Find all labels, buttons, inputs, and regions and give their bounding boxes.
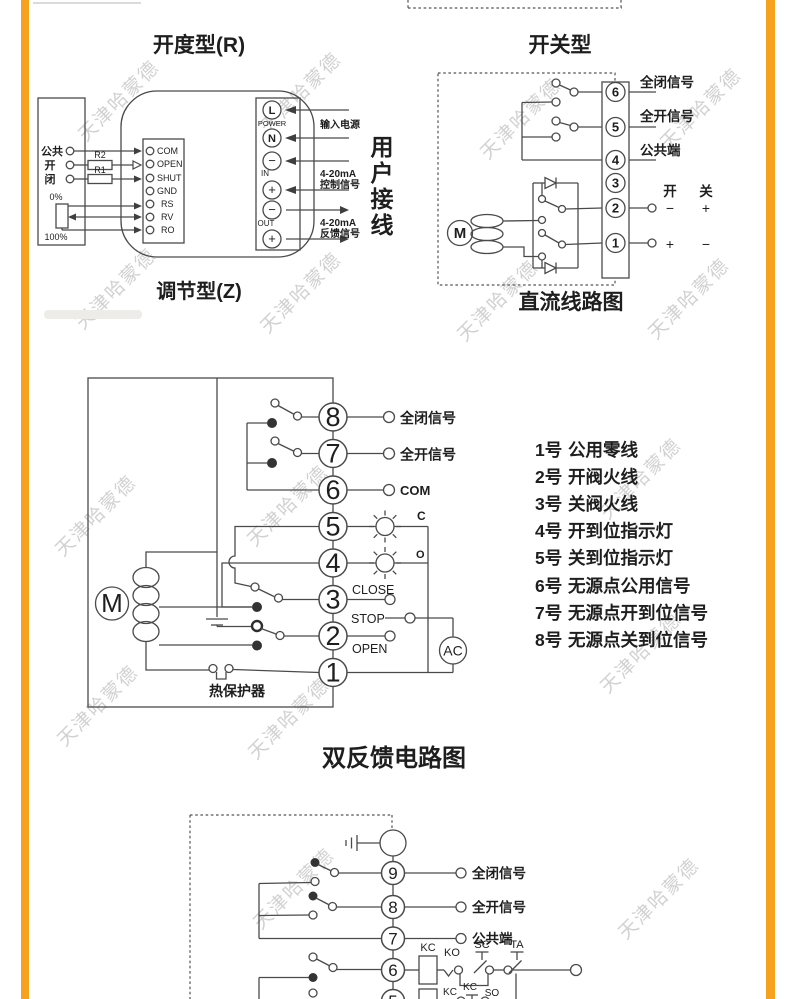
left-wiring-arrows: R2 R1 xyxy=(62,148,142,234)
d3-mid-switches xyxy=(222,527,319,651)
label-power: POWER xyxy=(258,119,287,128)
legend-6-num: 6号 xyxy=(535,576,562,596)
legend-2-num: 2号 xyxy=(535,467,562,487)
label-fb-ma: 4-20mA xyxy=(320,218,356,229)
legend-4-text: 开到位指示灯 xyxy=(568,521,673,541)
term-in-plus: + xyxy=(268,182,276,197)
d4-term-9: 9 xyxy=(388,864,397,883)
d3-term-1: 1 xyxy=(325,658,340,688)
controller-module: COM OPEN SHUT GND RS RV RO xyxy=(121,91,314,257)
dc-terminal-strip: 6 5 4 3 2 1 xyxy=(602,82,629,278)
ac-circuit-diagram: 全闭信号 全开信号 公共端 KC KO SC TA xyxy=(190,815,582,999)
d3-term-3: 3 xyxy=(325,585,340,615)
module-term-gnd: GND xyxy=(157,186,178,196)
label-ctrl-signal: 控制信号 xyxy=(320,178,360,191)
d2-label-open-ch: 开 xyxy=(663,184,677,199)
d3-label-opened: 全开信号 xyxy=(399,447,456,463)
d3-thermal-label: 热保护器 xyxy=(209,683,266,699)
d3-label-open: OPEN xyxy=(352,642,387,656)
legend-3-text: 关阀火线 xyxy=(568,494,638,514)
d2-title: 开关型 xyxy=(529,33,592,57)
relay-coil-icon xyxy=(419,956,437,984)
d3-term-8: 8 xyxy=(325,402,340,432)
diode-icon xyxy=(545,263,556,274)
d2-term-1: 1 xyxy=(612,236,619,251)
d4-terminals: 9 8 7 6 5 xyxy=(382,862,405,999)
d3-ac-label: AC xyxy=(443,643,462,659)
capacitor-icon xyxy=(206,619,252,627)
label-fb-signal: 反馈信号 xyxy=(320,227,360,240)
legend-8-num: 8号 xyxy=(535,630,562,650)
d2-pol-minus2: − xyxy=(666,200,674,216)
wiring-diagrams-canvas: 开度型(R) 调节型(Z) 公共 开 闭 0% 100% R2 R1 xyxy=(0,0,790,999)
d3-motor-label: M xyxy=(101,588,123,618)
ground-icon xyxy=(346,835,380,851)
label-close: 闭 xyxy=(45,172,56,186)
d2-label-common: 公共端 xyxy=(640,142,681,158)
top-cropped-remnant xyxy=(33,0,622,8)
d4-kc-label: KC xyxy=(420,942,435,954)
module-term-rv: RV xyxy=(161,212,173,222)
label-open: 开 xyxy=(45,159,56,172)
legend-4-num: 4号 xyxy=(535,521,562,541)
d3-caption: 双反馈电路图 xyxy=(322,744,466,772)
d4-switches xyxy=(259,858,382,999)
legend-6-text: 无源点公用信号 xyxy=(568,576,691,596)
label-pot-100: 100% xyxy=(44,232,67,242)
d3-legend: 1号 公用零线 2号 开阀火线 3号 关阀火线 4号 开到位指示灯 5号 关到位… xyxy=(535,440,708,650)
module-term-shut: SHUT xyxy=(157,173,182,183)
d4-kc2-label: KC xyxy=(443,987,457,998)
d2-label-closed: 全闭信号 xyxy=(639,74,694,90)
term-out-plus: + xyxy=(268,231,276,246)
motor-drive-loop xyxy=(503,178,602,274)
term-N: N xyxy=(268,133,276,145)
module-term-ro: RO xyxy=(161,225,175,235)
resistor-icon-r1 xyxy=(88,175,112,184)
d4-sc-label: SC xyxy=(474,939,489,951)
page-accent-bar-right xyxy=(766,0,775,999)
label-r2: R2 xyxy=(94,150,106,160)
legend-1-num: 1号 xyxy=(535,440,562,460)
user-char-1: 用 xyxy=(371,134,394,160)
d3-outputs: 全闭信号 全开信号 COM C xyxy=(347,410,467,673)
legend-7-num: 7号 xyxy=(535,603,562,623)
potentiometer-icon xyxy=(56,204,68,228)
label-in: IN xyxy=(261,169,269,178)
legend-1-text: 公用零线 xyxy=(568,440,638,460)
label-input-power: 输入电源 xyxy=(320,118,360,131)
d2-pol-plus1: + xyxy=(666,236,674,252)
module-term-open: OPEN xyxy=(157,159,183,169)
d4-outputs: 全闭信号 全开信号 公共端 xyxy=(405,865,527,947)
legend-7-text: 无源点开到位信号 xyxy=(568,603,708,623)
legend-5-num: 5号 xyxy=(535,548,562,568)
d2-pol-plus2: + xyxy=(702,200,710,216)
d3-upper-switches xyxy=(247,399,319,490)
opening-type-diagram: 开度型(R) 调节型(Z) 公共 开 闭 0% 100% R2 R1 xyxy=(38,33,394,303)
d2-signal-labels: 全闭信号 全开信号 公共端 开 关 − + + − xyxy=(629,74,713,252)
d4-ta-label: TA xyxy=(510,939,524,951)
page-accent-bar-left xyxy=(21,0,29,999)
legend-3-num: 3号 xyxy=(535,494,562,514)
label-pot-0: 0% xyxy=(49,192,62,202)
term-in-minus: − xyxy=(268,153,276,168)
d3-label-stop: STOP xyxy=(351,612,385,626)
user-char-2: 户 xyxy=(371,160,394,186)
d2-term-4: 4 xyxy=(612,153,620,168)
user-wiring-arrows: 输入电源 4-20mA 控制信号 4-20mA 反馈信号 xyxy=(285,106,360,243)
upper-limit-switches xyxy=(522,79,602,160)
d4-kc3-label: KC xyxy=(463,982,477,993)
lamp-icon-close xyxy=(347,511,428,543)
d2-label-opened: 全开信号 xyxy=(639,108,694,124)
d3-term-2: 2 xyxy=(325,621,340,651)
d2-term-6: 6 xyxy=(612,85,619,100)
d3-term-6: 6 xyxy=(325,475,340,505)
d3-lamp-c-label: C xyxy=(417,509,426,523)
d3-term-7: 7 xyxy=(325,439,340,469)
motor-icon xyxy=(380,830,406,856)
module-term-com: COM xyxy=(157,146,178,156)
user-char-3: 接 xyxy=(371,186,394,212)
d4-label-closed: 全闭信号 xyxy=(471,865,526,881)
term-out-minus: − xyxy=(268,202,276,217)
motor-icon: M xyxy=(448,215,504,254)
d3-label-close: CLOSE xyxy=(352,583,394,597)
d4-term-8: 8 xyxy=(388,898,397,917)
diode-icon xyxy=(545,178,556,189)
d4-term-7: 7 xyxy=(388,930,397,949)
d4-ko-label: KO xyxy=(444,947,460,959)
motor-icon: M xyxy=(96,568,160,642)
d4-label-opened: 全开信号 xyxy=(471,899,526,915)
d2-pol-minus1: − xyxy=(702,236,710,252)
d4-term-6: 6 xyxy=(388,961,397,980)
d2-motor-label: M xyxy=(454,225,467,242)
d3-term-5: 5 xyxy=(325,512,340,542)
d3-label-closed: 全闭信号 xyxy=(399,410,456,426)
d3-lamp-o-label: O xyxy=(416,549,425,561)
user-wiring-label: 用 户 接 线 xyxy=(371,134,394,238)
switch-type-diagram: 开关型 M xyxy=(438,33,713,314)
power-terminal-strip: L POWER N − IN + − OUT + xyxy=(256,98,300,250)
legend-8-text: 无源点关到位信号 xyxy=(568,630,708,650)
legend-2-text: 开阀火线 xyxy=(568,467,638,487)
user-char-4: 线 xyxy=(371,212,394,238)
thermal-protector-icon xyxy=(209,665,319,680)
d3-term-4: 4 xyxy=(325,548,340,578)
d3-label-com: COM xyxy=(400,483,430,498)
d2-term-5: 5 xyxy=(612,120,619,135)
d2-term-2: 2 xyxy=(612,201,619,216)
label-common: 公共 xyxy=(41,144,63,158)
d4-term-5: 5 xyxy=(388,992,397,999)
label-out: OUT xyxy=(258,219,275,228)
d2-label-close-ch: 关 xyxy=(699,183,713,199)
label-ctrl-ma: 4-20mA xyxy=(320,169,356,180)
d1-title: 开度型(R) xyxy=(153,33,245,57)
double-feedback-diagram: M 热保护器 xyxy=(88,378,708,772)
d2-caption: 直流线路图 xyxy=(519,290,624,314)
legend-5-text: 关到位指示灯 xyxy=(568,548,673,568)
external-terminal-box: 公共 开 闭 0% 100% xyxy=(38,98,85,245)
d2-term-3: 3 xyxy=(612,176,619,191)
d1-subtitle: 调节型(Z) xyxy=(156,279,242,303)
term-L: L xyxy=(269,105,276,117)
module-term-rs: RS xyxy=(161,199,174,209)
ac-source-icon: AC xyxy=(440,637,467,664)
label-r1: R1 xyxy=(94,165,106,175)
